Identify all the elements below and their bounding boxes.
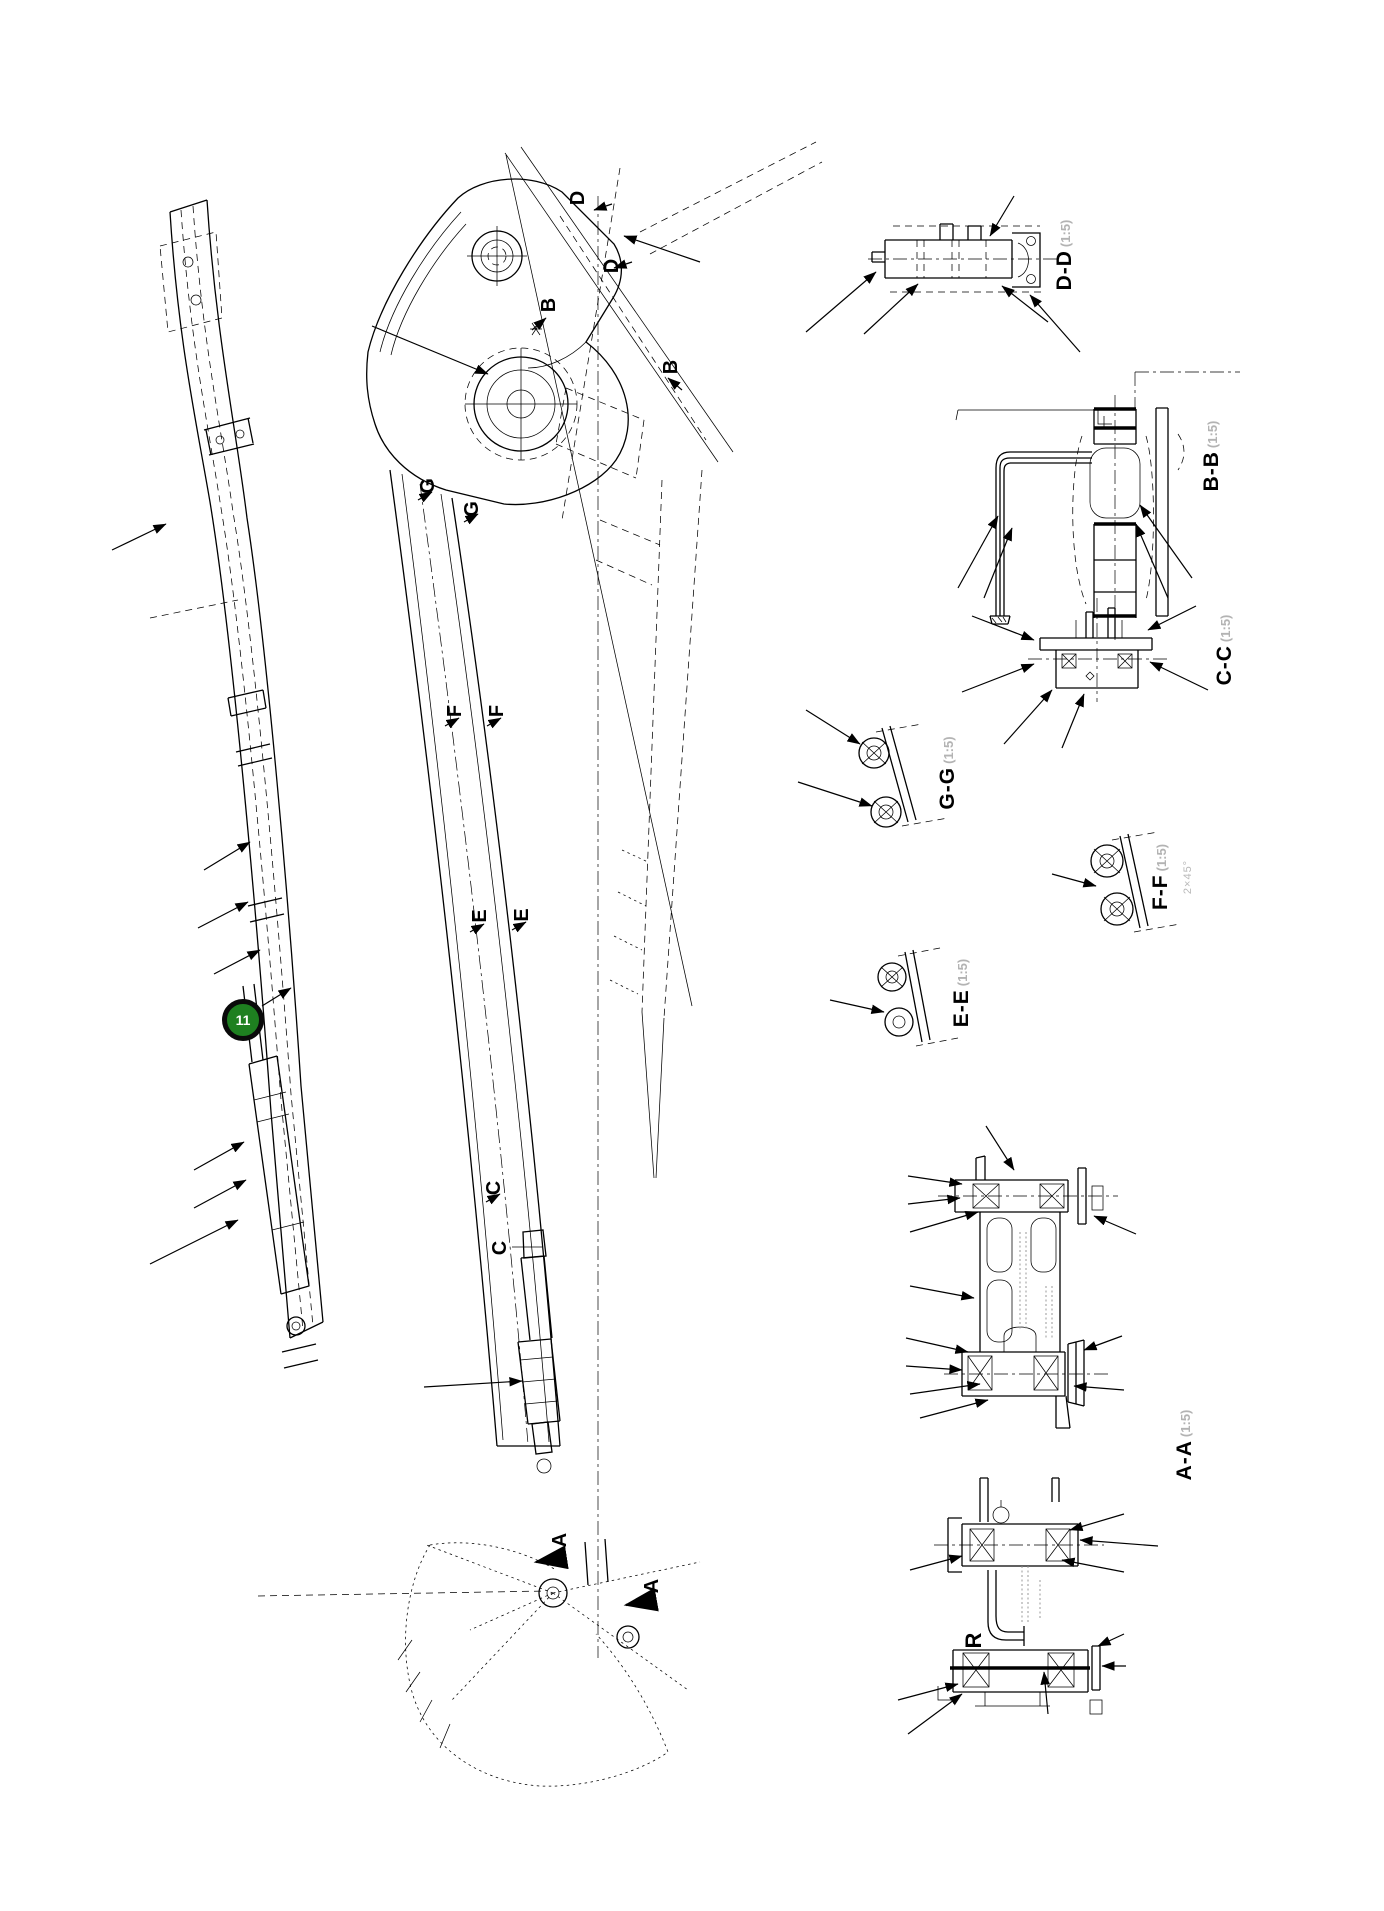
cut-letter-a-left: A [550, 1533, 570, 1547]
section-label-ff-text: F-F [1149, 874, 1173, 910]
section-label-bb: B-B(1:5) [1200, 421, 1224, 492]
section-ee-view [830, 948, 958, 1046]
leader-arrow [112, 524, 166, 550]
balloon-leader-arrow [262, 988, 291, 1006]
section-label-r: R [961, 1632, 987, 1649]
item-balloon-number: 11 [236, 1012, 251, 1028]
cut-letter-f-right: F [487, 705, 507, 717]
section-label-ee-text: E-E [950, 989, 974, 1027]
leader-arrow [204, 842, 250, 870]
cut-letter-d-top: D [568, 191, 588, 205]
leader-arrow [214, 950, 260, 974]
cut-letter-e-left: E [470, 909, 490, 922]
section-label-cc-text: C-C [1213, 645, 1237, 685]
drawing-page: D-D(1:5) B-B(1:5) C-C(1:5) G-G(1:5) F-F(… [0, 0, 1384, 1911]
section-label-aa-text: A-A [1173, 1440, 1197, 1480]
section-label-dd-text: D-D [1053, 250, 1077, 290]
section-label-r-text: R [961, 1632, 987, 1649]
arm-assembly-view [258, 142, 822, 1786]
section-label-bb-text: B-B [1200, 451, 1224, 491]
leader-arrow [424, 1381, 522, 1387]
leader-arrow [372, 326, 488, 374]
leader-arrow [194, 1142, 244, 1170]
section-label-aa-scale: (1:5) [1178, 1410, 1193, 1437]
drawing-canvas [0, 0, 1384, 1911]
cut-letter-e-right: E [512, 908, 532, 921]
leader-arrow [150, 1220, 238, 1264]
cut-letter-c-upper: C [484, 1181, 504, 1195]
cut-letter-b-right: B [661, 360, 681, 374]
section-label-cc-scale: (1:5) [1218, 615, 1233, 642]
cut-letter-a-right: A [642, 1579, 662, 1593]
cut-letter-g-left: G [418, 478, 438, 494]
cut-letter-b-left: B [539, 298, 559, 312]
leader-arrow [624, 236, 700, 262]
section-label-bb-scale: (1:5) [1205, 421, 1220, 448]
item-balloon-11[interactable]: 11 [222, 999, 264, 1041]
section-label-dd-scale: (1:5) [1058, 220, 1073, 247]
section-label-ee: E-E(1:5) [950, 959, 974, 1027]
cut-letter-d-bottom: D [602, 259, 622, 273]
section-label-gg: G-G(1:5) [936, 736, 960, 809]
section-cc-view [962, 598, 1208, 748]
section-label-gg-text: G-G [936, 767, 960, 810]
cut-letter-f-left: F [445, 705, 465, 717]
section-gg-view [798, 710, 948, 827]
cut-letter-g-right: G [462, 501, 482, 517]
leader-arrow [194, 1180, 246, 1208]
section-cut-arrow-a [626, 1600, 654, 1605]
section-label-ff: F-F(1:5) [1149, 844, 1173, 910]
section-label-dd: D-D(1:5) [1053, 220, 1077, 291]
section-label-gg-scale: (1:5) [941, 736, 956, 763]
section-ff-note: 2×45° [1182, 860, 1194, 894]
leader-arrow [198, 902, 248, 928]
section-label-ff-scale: (1:5) [1154, 844, 1169, 871]
section-label-aa: A-A(1:5) [1173, 1410, 1197, 1481]
left-boom-view [112, 200, 323, 1368]
section-dd-view [806, 196, 1080, 352]
section-cut-arrow-a [536, 1558, 562, 1562]
section-label-cc: C-C(1:5) [1213, 615, 1237, 686]
section-aa-view [898, 1126, 1158, 1734]
cut-letter-c-lower: C [490, 1241, 510, 1255]
section-bb-view [956, 372, 1240, 640]
section-label-ee-scale: (1:5) [955, 959, 970, 986]
